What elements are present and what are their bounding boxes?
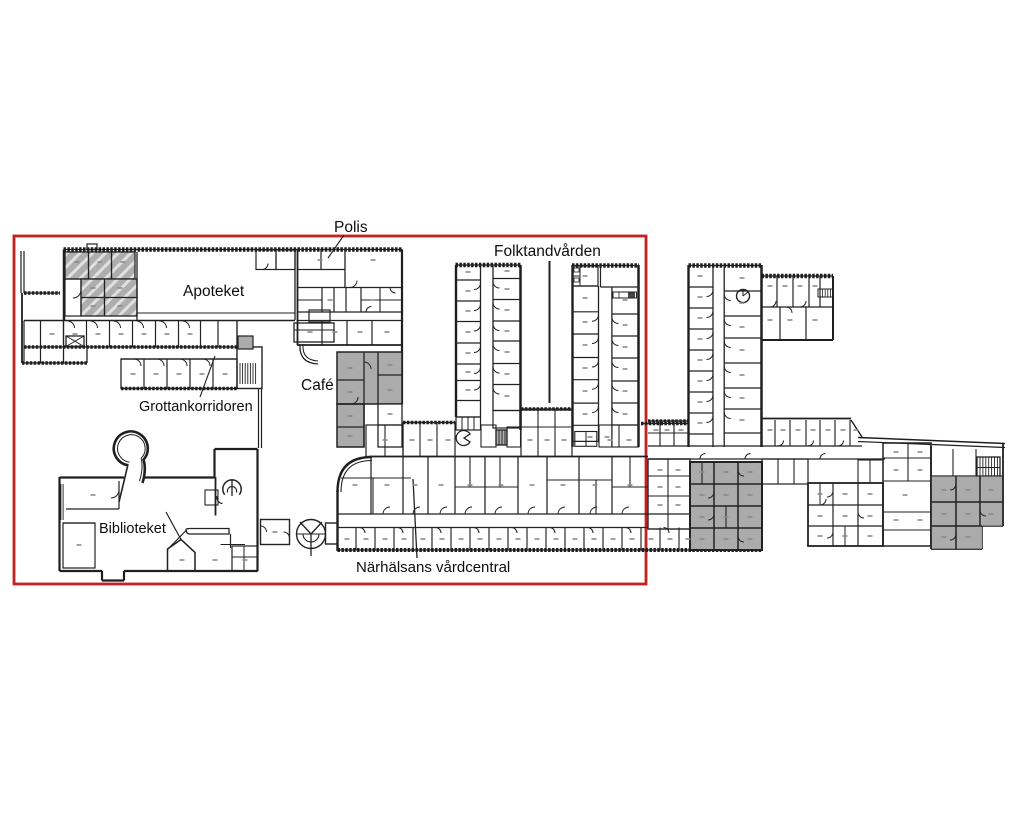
svg-text:Närhälsans vårdcentral: Närhälsans vårdcentral xyxy=(356,559,510,576)
svg-text:Folktandvården: Folktandvården xyxy=(494,243,601,260)
svg-text:Café: Café xyxy=(301,377,334,394)
svg-text:Grottankorridoren: Grottankorridoren xyxy=(139,399,253,415)
svg-text:Biblioteket: Biblioteket xyxy=(99,521,166,537)
svg-text:Apoteket: Apoteket xyxy=(183,283,245,300)
svg-text:Polis: Polis xyxy=(334,219,368,236)
